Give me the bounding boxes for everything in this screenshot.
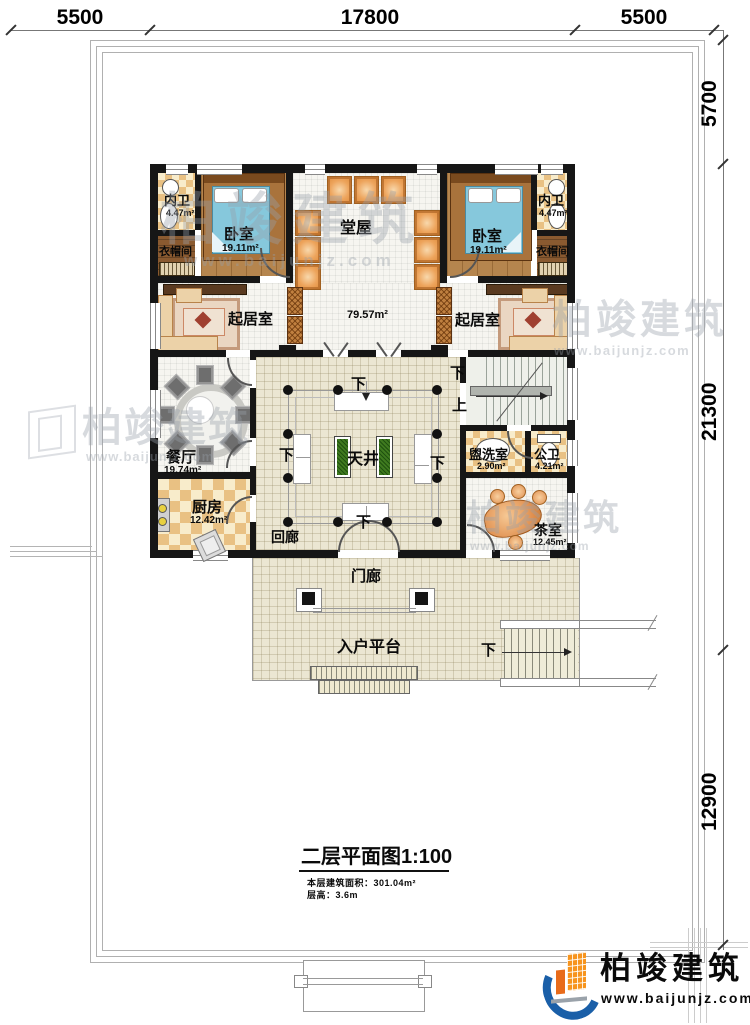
wall-tea-top [460,472,567,478]
tea-stool [490,489,505,504]
pillow [468,188,493,203]
room-label-platform: 入户平台 [337,640,401,656]
hall-chair [327,176,352,204]
tea-stool [532,490,547,505]
logo-orange-tower [567,952,586,991]
room-label-tea: 茶室 [534,523,562,537]
floor-plan-canvas: 5500 17800 5500 5700 21300 12900 [0,0,750,1025]
room-label-wash: 盥洗室 [469,448,508,461]
room-label-corridor: 回廊 [271,530,299,544]
stair-arrow-line [476,396,540,397]
room-area-tea: 12.45m² [533,538,567,547]
plan-title-name: 二层平面图 [301,846,401,868]
column [283,517,293,527]
exterior-stair-arrow [564,648,572,656]
dim-right-1: 5700 [698,62,722,146]
column [382,385,392,395]
wall-bath-right [531,173,537,230]
stair-down-label: 下 [279,448,294,463]
title-area-line: 本层建筑面积：301.04m² [307,879,416,888]
dim-top-left: 5500 [40,6,120,30]
gate-post [418,975,432,988]
column [333,517,343,527]
column [432,385,442,395]
wall-h3 [158,350,226,357]
courtyard-step [293,434,311,484]
window [150,303,161,349]
step-arrow-line [296,457,310,458]
logo-guide-line [650,947,748,948]
window [166,164,188,175]
room-label-hall: 堂屋 [340,221,372,237]
stair-arrow [540,392,548,400]
title-height-line: 层高：3.6m [307,891,358,900]
rear-gate-line [303,978,423,979]
logo-guide-line [650,942,748,943]
window [417,164,437,175]
hall-chair [381,176,406,204]
exterior-rail-extension [578,620,656,629]
pillow [242,188,267,203]
room-area-bath-right: 4.47m² [539,209,568,218]
armchair-right [522,288,548,303]
room-area-bedroom-left: 19.11m² [222,244,259,254]
wall-h3 [348,350,376,357]
terrace-step-line [10,556,103,557]
hall-chair [354,176,379,204]
porch-step-edge [313,608,416,609]
room-label-courtyard: 天井 [347,452,379,468]
wood-post [287,287,303,315]
stair-down-label: 下 [356,515,371,530]
window [150,390,161,438]
window [567,303,578,349]
room-label-toilet: 公卫 [534,448,560,461]
column [432,429,442,439]
hall-chair [414,237,440,263]
watermark-logo-icon [28,405,76,460]
room-label-kitchen: 厨房 [192,500,222,515]
step-arrow-line [366,381,367,393]
wardrobe-left [159,262,195,276]
wall-hall-right [440,164,447,283]
room-label-dining: 餐厅 [166,450,196,465]
wardrobe-right [538,262,568,276]
wall-bath-right-bottom [537,230,567,236]
window [197,164,242,175]
room-area-wash: 2.90m² [477,462,506,471]
sink-basin [200,535,221,556]
room-area-bath-left: 4.47m² [166,209,195,218]
step-arrow [362,393,370,401]
exterior-stair-rail [500,620,580,629]
dim-right-3: 12900 [698,750,722,854]
room-label-cloak-left: 衣帽间 [159,247,192,258]
brand-name: 柏竣建筑 [600,953,744,984]
exterior-stair-rail [500,678,580,687]
headboard [204,174,284,183]
window [305,164,325,175]
dimension-line-right [723,30,724,950]
wall-bottom-seg [550,550,575,558]
wall-v3 [250,522,256,550]
window [567,368,578,420]
wall-bottom-seg [150,550,193,558]
wood-post [436,316,452,344]
entry-steps [310,666,418,680]
window [541,164,563,175]
hall-chair [295,237,321,263]
pillow [214,188,239,203]
plan-title-scale: 1:100 [401,846,452,868]
window [500,550,550,561]
wall-bath-left [195,173,201,230]
logo-orange-small [556,969,565,994]
room-label-bedroom-right: 卧室 [472,229,502,244]
dim-top-center: 17800 [322,6,418,30]
wall-bottom-seg [398,550,466,558]
room-label-bath-right: 内卫 [538,194,564,207]
tea-stool [508,535,523,550]
porch-column [415,592,428,605]
wood-post [436,287,452,315]
wall-v3 [250,466,256,495]
headboard [451,174,531,183]
room-label-porch: 门廊 [351,569,381,584]
column [283,385,293,395]
title-underline [299,870,449,872]
gate-post [294,975,308,988]
window [567,493,578,543]
stair-up-label: 上 [452,398,467,413]
brand-site: www.baijunjz.com [601,991,750,1005]
stair-down-label: 下 [481,643,496,658]
column [382,517,392,527]
wall-bath-left-bottom [158,230,195,236]
room-area-kitchen: 12.42m² [190,516,227,526]
room-area-bedroom-right: 19.11m² [470,246,507,256]
wall-v3 [250,388,256,438]
tea-stool [511,484,526,499]
wall-h2-left [158,276,260,283]
rear-gate [303,960,425,1012]
pillow [496,188,521,203]
burner [158,504,167,513]
terrace-step-line [10,551,97,552]
dining-table-center [186,396,214,424]
wall-left [150,164,158,558]
column [432,517,442,527]
burner [158,517,167,526]
room-label-bedroom-left: 卧室 [224,227,254,242]
exterior-stair-arrow-line [502,652,564,653]
wall-h3 [468,350,567,357]
column [283,473,293,483]
hall-chair [295,210,321,236]
plan-title: 二层平面图1:100 [301,847,452,867]
dining-chair [196,445,214,465]
dimension-line-top [10,30,723,31]
hall-chair [414,210,440,236]
rear-gate-line [303,984,423,985]
room-label-living-left: 起居室 [228,312,273,327]
wall-h4 [460,425,507,431]
wall-h2-right [478,276,567,283]
column [283,429,293,439]
room-label-cloak-right: 衣帽间 [536,247,569,258]
stair-down-label: 下 [351,377,366,392]
stair-down-label: 下 [430,456,445,471]
porch-column [302,592,315,605]
column [432,473,442,483]
wall-v3r [460,425,466,550]
porch-step-edge [313,612,416,613]
room-label-living-right: 起居室 [455,313,500,328]
exterior-rail-extension [578,678,656,687]
dim-right-2: 21300 [698,360,722,464]
column [333,385,343,395]
wall-h4 [531,425,567,431]
room-area-living: 79.57m² [347,310,388,321]
dining-chair [196,365,214,385]
dim-top-right: 5500 [604,6,684,30]
column-base [279,345,296,357]
terrace-step-line [10,546,92,547]
stair-down-label: 下 [450,366,465,381]
wood-post [287,316,303,344]
watermark-logo-inner [38,415,62,452]
brand-logo-icon [543,950,595,1010]
entry-steps [318,680,410,694]
room-area-dining: 19.74m² [164,466,201,476]
armchair-left [176,288,202,303]
window [495,164,538,175]
room-area-toilet: 4.21m² [535,462,564,471]
wall-bottom-seg [228,550,338,558]
window [567,440,578,466]
column-base [431,345,448,357]
step-arrow-line [415,465,429,466]
room-label-bath-left: 内卫 [164,194,190,207]
